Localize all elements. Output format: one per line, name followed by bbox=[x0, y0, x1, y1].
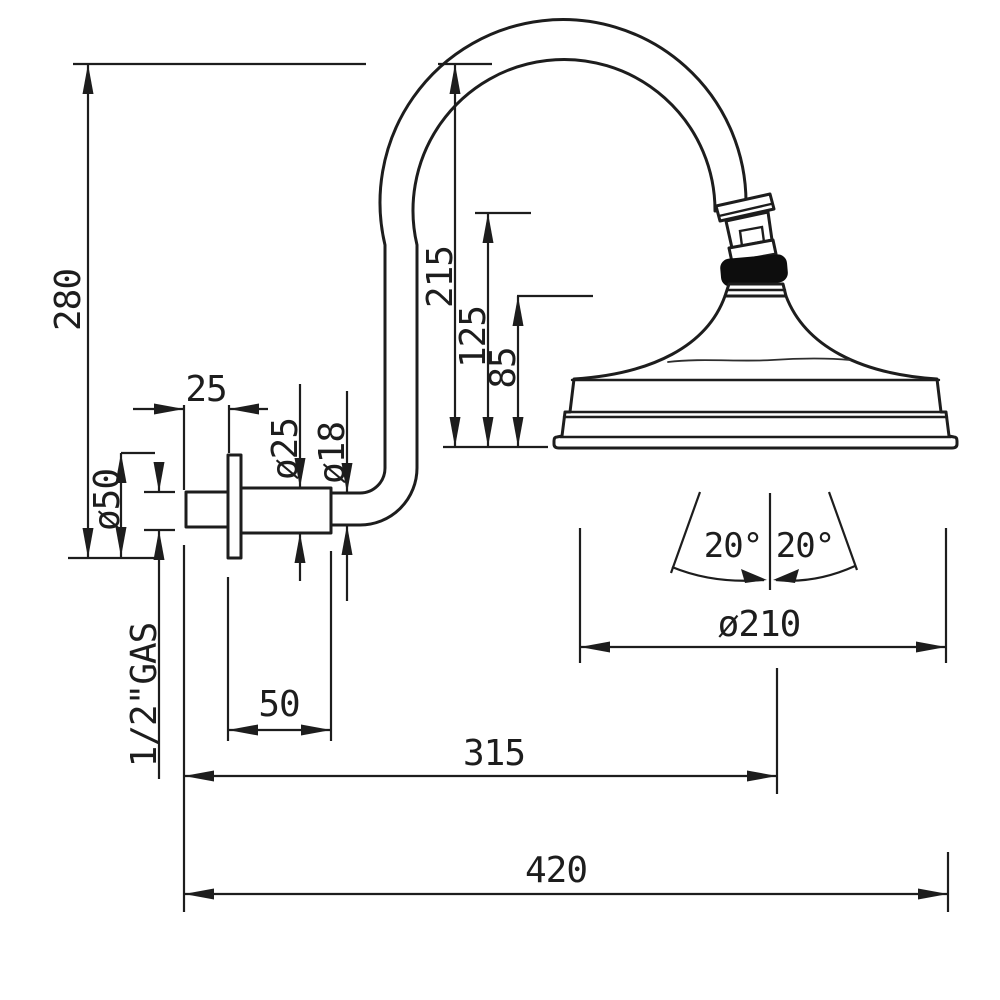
arrow-215-top bbox=[450, 64, 461, 94]
dim-escutcheon-length: 50 bbox=[228, 684, 331, 736]
dim-label-angle-left: 20° bbox=[704, 526, 762, 566]
dim-escutcheon-diameter: ø25 bbox=[265, 384, 306, 581]
arrow-85-top bbox=[513, 296, 524, 326]
dim-label-angle-right: 20° bbox=[776, 526, 834, 566]
drawing-canvas: 280 ø50 1/2"GAS 25 bbox=[0, 0, 1000, 1000]
dim-thread: 1/2"GAS bbox=[124, 462, 165, 779]
arrow-25-right bbox=[229, 404, 259, 415]
arrow-215-bottom bbox=[450, 417, 461, 447]
arrow-d210-left bbox=[580, 642, 610, 653]
arrow-280-bottom bbox=[83, 528, 94, 558]
dim-label-gas: 1/2"GAS bbox=[124, 623, 165, 768]
shower-head-bell bbox=[554, 296, 957, 448]
arrow-420-right bbox=[918, 889, 948, 900]
dim-label-315: 315 bbox=[463, 733, 525, 774]
dim-label-50: 50 bbox=[258, 684, 299, 725]
arrow-gas-top bbox=[154, 462, 165, 492]
arrow-50-right bbox=[301, 725, 331, 736]
dim-flange-diameter: ø50 bbox=[87, 453, 128, 557]
dim-head-diameter: ø210 bbox=[580, 604, 946, 653]
arrow-125-bottom bbox=[483, 417, 494, 447]
dim-nipple-length: 25 bbox=[133, 369, 268, 415]
wall-nipple bbox=[186, 492, 228, 527]
dim-label-25: 25 bbox=[185, 369, 226, 410]
dim-label-215: 215 bbox=[420, 246, 461, 308]
o-ring-seal bbox=[720, 254, 788, 287]
dim-label-d50: ø50 bbox=[87, 469, 128, 531]
arrow-420-left bbox=[184, 889, 214, 900]
escutcheon-tube bbox=[241, 488, 331, 533]
arrow-280-top bbox=[83, 64, 94, 94]
arrow-d25-bottom bbox=[295, 533, 306, 563]
dimensions: 280 ø50 1/2"GAS 25 bbox=[48, 64, 948, 912]
dim-label-d210: ø210 bbox=[718, 604, 801, 645]
spray-cone-left-line bbox=[671, 492, 700, 573]
technical-drawing: 280 ø50 1/2"GAS 25 bbox=[0, 0, 1000, 1000]
arrow-gas-bottom bbox=[154, 530, 165, 560]
dim-label-d25: ø25 bbox=[265, 418, 306, 480]
dim-label-85: 85 bbox=[483, 347, 524, 388]
arrow-50-left bbox=[228, 725, 258, 736]
shower-assembly bbox=[186, 20, 957, 590]
arrow-d18-bottom bbox=[342, 525, 353, 555]
arrow-125-top bbox=[483, 213, 494, 243]
arrow-85-bottom bbox=[513, 417, 524, 447]
dim-label-280: 280 bbox=[48, 269, 89, 331]
arrow-25-left bbox=[154, 404, 184, 415]
dim-overall-projection: 420 bbox=[184, 850, 948, 900]
wall-flange bbox=[228, 455, 241, 558]
arrow-d210-right bbox=[916, 642, 946, 653]
dim-label-420: 420 bbox=[525, 850, 587, 891]
dim-label-d18: ø18 bbox=[312, 422, 353, 484]
arrow-315-right bbox=[747, 771, 777, 782]
arrow-315-left bbox=[184, 771, 214, 782]
dim-wall-to-center: 315 bbox=[184, 733, 777, 782]
